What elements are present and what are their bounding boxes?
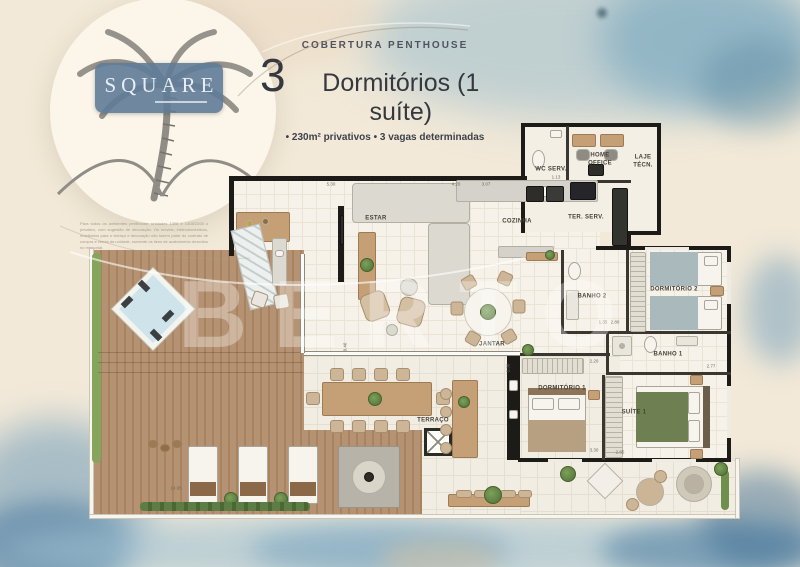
- dimension-label: 9.46: [343, 343, 348, 352]
- terrace-chair: [374, 368, 388, 381]
- dimension-label: 2.85: [616, 450, 625, 455]
- plant-long-table: [368, 392, 382, 406]
- deck-step-line: [98, 362, 303, 363]
- bench-cushion: [518, 490, 532, 498]
- dorm2-nightstand: [710, 286, 724, 296]
- pouf: [400, 278, 418, 296]
- firepit-center: [364, 472, 374, 482]
- plant-bench: [484, 486, 502, 504]
- glass-door-deck: [300, 254, 305, 353]
- room-label: BANHO 2: [577, 293, 606, 301]
- tv-panel: [340, 215, 344, 245]
- terrace-chair: [396, 368, 410, 381]
- dorm1-wardrobe: [522, 358, 584, 374]
- bench-cushion: [500, 490, 516, 498]
- room-label: JANTAR: [479, 341, 505, 349]
- wall-laje-right: [657, 123, 661, 235]
- washer: [526, 186, 544, 202]
- suite-nightstand: [690, 449, 703, 459]
- cooktop: [570, 182, 596, 200]
- window-suite-right: [727, 386, 731, 438]
- dimension-label: 5.30: [506, 364, 511, 373]
- side-table: [386, 324, 398, 336]
- room-label: TER. SERV.: [568, 214, 604, 222]
- dimension-label: 14.95: [170, 486, 181, 491]
- dorm2-wardrobe: [630, 252, 646, 332]
- window-suite: [652, 459, 696, 462]
- partition-dorm2-left: [626, 250, 629, 334]
- room-label: BANHO 1: [653, 351, 682, 359]
- outdoor-chair: [626, 498, 639, 511]
- banho1-drain: [619, 343, 625, 349]
- room-label: HOME OFFICE: [588, 153, 612, 168]
- terrace-chair: [374, 420, 388, 433]
- dimension-label: 2.20: [590, 359, 599, 364]
- home-office-desk: [572, 134, 596, 147]
- window-dorm1: [548, 459, 582, 462]
- room-label: LAJE TÉCN.: [633, 155, 653, 170]
- outdoor-chair: [654, 470, 667, 483]
- room-label: ESTAR: [365, 215, 386, 223]
- bbq-niche: [509, 410, 518, 419]
- dimension-label: 2.77: [707, 364, 716, 369]
- dimension-label: 5.30: [327, 182, 336, 187]
- room-label: SUÍTE 1: [622, 409, 647, 417]
- deck-stone: [160, 444, 170, 452]
- parapet-bottom: [89, 514, 739, 519]
- banho2-toilet: [568, 262, 581, 280]
- wall-laje-bottom: [629, 231, 661, 235]
- parapet-right: [735, 458, 740, 519]
- dorm1-blanket: [528, 420, 586, 452]
- bar-stool: [440, 388, 452, 400]
- dimension-label: 3.07: [482, 182, 491, 187]
- wall-service-top: [521, 123, 661, 127]
- deck-stone: [172, 440, 182, 448]
- decor-bowl: [262, 218, 269, 225]
- wall-service-left: [521, 123, 525, 233]
- plant-bar: [458, 396, 470, 408]
- planter-strip-right: [721, 470, 729, 510]
- dorm1-pillow: [532, 398, 554, 410]
- plant-console: [360, 258, 374, 272]
- deck-stone: [148, 440, 158, 448]
- dorm1-pillow: [558, 398, 580, 410]
- suite-pillow: [688, 392, 700, 414]
- partition-banho2-bottom: [561, 331, 629, 334]
- dorm2-blanket: [650, 296, 698, 330]
- banho1-vanity: [676, 336, 698, 346]
- terrace-chair: [352, 420, 366, 433]
- plant-terrace: [714, 462, 728, 476]
- glass-door-terrace: [304, 351, 520, 356]
- partition-suite-top: [606, 372, 731, 375]
- lounger-cushion: [240, 482, 266, 496]
- suite-nightstand: [690, 375, 703, 385]
- room-label: TERRAÇO: [417, 417, 449, 425]
- room-label: DORMITÓRIO 1: [538, 385, 586, 393]
- dorm1-nightstand: [588, 390, 600, 400]
- dining-centerpiece: [480, 304, 496, 320]
- lounger-cushion: [190, 482, 216, 496]
- bbq-niche: [509, 380, 518, 391]
- terrace-chair: [352, 368, 366, 381]
- suite-closet: [605, 376, 623, 458]
- dimension-label: 3.30: [590, 448, 599, 453]
- egg-chair-cushion: [684, 474, 704, 494]
- dimension-label: 1.35: [599, 320, 608, 325]
- terrace-chair: [306, 392, 320, 405]
- dorm2-blanket: [650, 252, 698, 286]
- page: SQUARE Para todos os ambientes penthouse…: [0, 0, 800, 567]
- deck-step-line: [98, 352, 303, 353]
- terrace-chair: [330, 368, 344, 381]
- suite-headboard: [703, 386, 710, 448]
- partition-banho2-left: [561, 250, 564, 334]
- window-dorm2-top: [645, 247, 689, 250]
- plant-corridor: [522, 344, 534, 356]
- bar-counter: [452, 380, 478, 458]
- planter-hedge: [140, 502, 310, 511]
- dining-chair: [513, 300, 526, 314]
- room-label: DORMITÓRIO 2: [650, 286, 698, 294]
- bar-stool: [440, 424, 452, 436]
- service-fridge: [612, 188, 628, 246]
- home-office-desk: [600, 134, 624, 147]
- dryer: [546, 186, 564, 202]
- deck-step-line: [98, 372, 303, 373]
- dorm2-pillow: [704, 300, 718, 310]
- dimension-label: 1.13: [552, 175, 561, 180]
- sofa-chaise: [428, 223, 470, 305]
- bar-stool: [440, 406, 452, 418]
- plant-kitchen: [545, 250, 555, 260]
- gourmet-island: [272, 238, 287, 286]
- window-dorm2-right: [727, 262, 731, 304]
- suite-pillow: [688, 420, 700, 442]
- terrace-chair: [396, 420, 410, 433]
- floor-plan: ESTARCOZINHAJANTARTERRAÇOHOME OFFICEWC S…: [0, 0, 800, 567]
- plant-terrace: [560, 466, 576, 482]
- gourmet-chair: [273, 293, 290, 310]
- wc-serv-sink: [550, 130, 562, 138]
- lounger-cushion: [290, 482, 316, 496]
- suite-blanket: [636, 392, 688, 442]
- dorm2-pillow: [704, 256, 718, 266]
- room-label: COZINHA: [502, 218, 531, 226]
- bar-stool: [440, 442, 452, 454]
- bench-cushion: [456, 490, 472, 498]
- dimension-label: 4.20: [452, 182, 461, 187]
- island-sink: [275, 250, 284, 257]
- room-label: WC SERV.: [535, 166, 566, 174]
- terrace-chair: [330, 420, 344, 433]
- grass-strip: [92, 253, 101, 463]
- dimension-label: 2.80: [611, 320, 620, 325]
- dining-chair: [451, 302, 464, 316]
